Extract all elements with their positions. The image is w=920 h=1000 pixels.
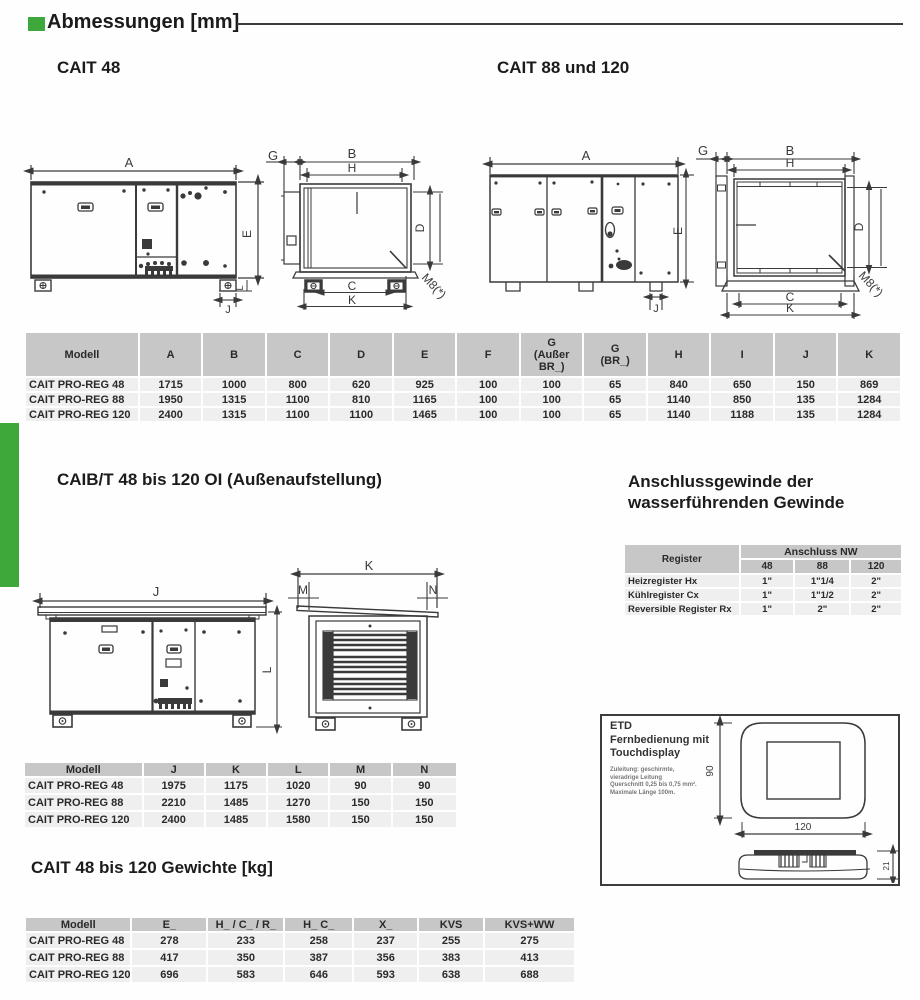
svg-text:D: D xyxy=(413,223,427,232)
svg-text:N: N xyxy=(429,583,438,597)
svg-text:G: G xyxy=(268,148,278,163)
svg-text:21: 21 xyxy=(882,861,891,870)
svg-text:E: E xyxy=(240,230,254,238)
svg-text:A: A xyxy=(582,148,591,163)
svg-text:A: A xyxy=(125,155,134,170)
svg-text:B: B xyxy=(348,146,357,161)
svg-text:C: C xyxy=(348,279,357,293)
svg-text:M: M xyxy=(298,583,308,597)
svg-text:G: G xyxy=(698,143,708,158)
svg-text:J: J xyxy=(653,303,659,315)
svg-text:M8(*): M8(*) xyxy=(856,268,886,299)
svg-text:M8(*): M8(*) xyxy=(419,270,449,301)
svg-text:E: E xyxy=(671,227,685,235)
svg-text:H: H xyxy=(348,161,357,175)
svg-text:120: 120 xyxy=(795,822,812,833)
svg-text:H: H xyxy=(786,156,795,170)
svg-text:J: J xyxy=(225,304,231,316)
svg-text:K: K xyxy=(786,301,794,315)
svg-text:D: D xyxy=(852,222,866,231)
svg-text:L: L xyxy=(235,285,245,290)
svg-text:L: L xyxy=(260,666,274,673)
svg-text:K: K xyxy=(365,560,374,573)
svg-text:K: K xyxy=(348,293,356,307)
svg-text:J: J xyxy=(153,584,160,599)
svg-text:90: 90 xyxy=(705,765,716,777)
